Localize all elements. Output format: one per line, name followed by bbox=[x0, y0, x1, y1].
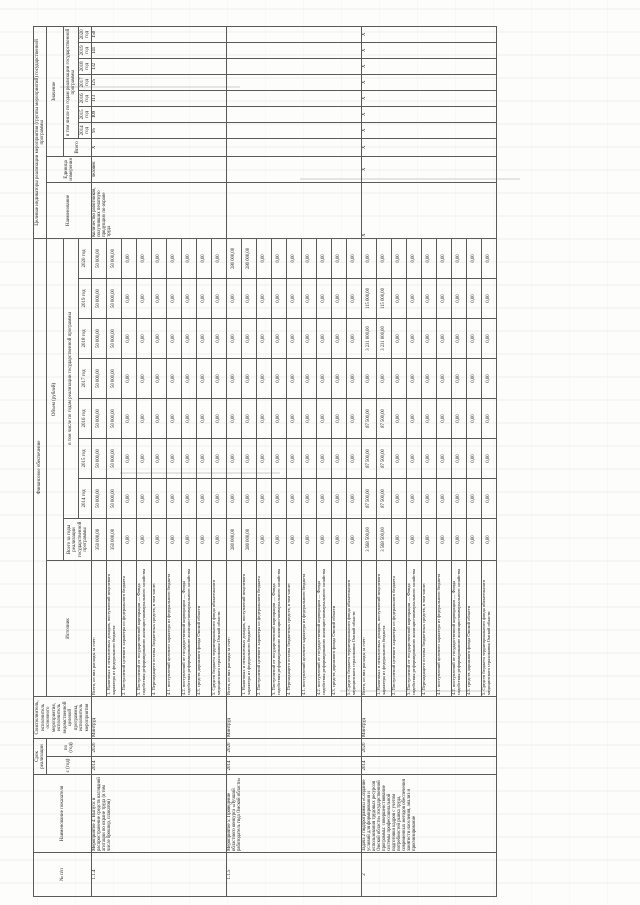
financing-year-value: 0,00 bbox=[137, 438, 152, 478]
financing-year-value: 0,00 bbox=[452, 238, 467, 278]
financing-total-value: 0,00 bbox=[272, 518, 287, 560]
financing-year-value: 0,00 bbox=[392, 318, 407, 358]
indicator-year-value: 150 bbox=[92, 26, 227, 42]
financing-year-value: 50 000,00 bbox=[107, 438, 122, 478]
financing-year-value: 0,00 bbox=[122, 398, 137, 438]
financing-year-value: 0,00 bbox=[467, 358, 482, 398]
col-header-indicator-name: Наименование bbox=[47, 182, 92, 238]
financing-year-value: 0,00 bbox=[227, 278, 242, 318]
financing-year-value: 0,00 bbox=[272, 278, 287, 318]
financing-year-value: 0,00 bbox=[332, 358, 347, 398]
financing-year-value: 0,00 bbox=[137, 278, 152, 318]
financing-year-value: 0,00 bbox=[242, 278, 257, 318]
indicator-year-value: 95 bbox=[92, 122, 227, 138]
financing-year-value: 0,00 bbox=[272, 238, 287, 278]
financing-year-value: 0,00 bbox=[407, 278, 422, 318]
financing-year-value: 0,00 bbox=[257, 438, 272, 478]
financing-total-value: 350 000,00 bbox=[107, 518, 122, 560]
financing-total-value: 0,00 bbox=[152, 518, 167, 560]
financing-year-value: 0,00 bbox=[167, 318, 182, 358]
financing-year-value: 0,00 bbox=[242, 398, 257, 438]
financing-year-value: 50 000,00 bbox=[92, 358, 107, 398]
financing-year-value: 0,00 bbox=[407, 398, 422, 438]
row-name: Мероприятие 5: Проведение областного кон… bbox=[227, 775, 362, 853]
financing-source-label: 2. Поступлений целевого характера из фед… bbox=[392, 560, 407, 696]
financing-year-value: 0,00 bbox=[242, 358, 257, 398]
financing-year-value: 0,00 bbox=[152, 398, 167, 438]
financing-year-value: 0,00 bbox=[467, 398, 482, 438]
financing-total-value: 0,00 bbox=[392, 518, 407, 560]
financing-total-value: 280 000,00 bbox=[227, 518, 242, 560]
indicator-year-value: Х bbox=[362, 90, 497, 106]
financing-year-value: 0,00 bbox=[182, 478, 197, 518]
financing-year-value: 0,00 bbox=[302, 358, 317, 398]
financing-year-value: 0,00 bbox=[182, 438, 197, 478]
financing-total-value: 0,00 bbox=[452, 518, 467, 560]
financing-year-value: 87 500,00 bbox=[377, 478, 392, 518]
financing-year-value: 50 000,00 bbox=[107, 398, 122, 438]
financing-year-value: 0,00 bbox=[212, 398, 227, 438]
financing-total-value: 0,00 bbox=[347, 518, 362, 560]
financing-year-value: 115 000,00 bbox=[377, 278, 392, 318]
indicator-year-value bbox=[227, 122, 362, 138]
col-header-year-financing: 2015 год bbox=[79, 438, 92, 478]
financing-total-value: 0,00 bbox=[182, 518, 197, 560]
financing-year-value: 0,00 bbox=[197, 358, 212, 398]
indicator-year-value bbox=[227, 58, 362, 74]
financing-year-value: 0,00 bbox=[452, 398, 467, 438]
col-header-executor: Соисполнитель, исполнитель основного мер… bbox=[34, 696, 92, 738]
financing-year-value: 0,00 bbox=[437, 478, 452, 518]
financing-source-label: Всего, из них расходы за счет: bbox=[227, 560, 242, 696]
indicator-year-value: 125 bbox=[92, 74, 227, 90]
financing-year-value: 0,00 bbox=[452, 278, 467, 318]
row-number: 1.1.4 bbox=[92, 853, 227, 897]
financing-year-value: 0,00 bbox=[482, 278, 497, 318]
financing-year-value: 0,00 bbox=[167, 358, 182, 398]
financing-total-value: 0,00 bbox=[332, 518, 347, 560]
indicator-year-value: 113 bbox=[92, 90, 227, 106]
financing-year-value: 0,00 bbox=[272, 478, 287, 518]
table-row: 1.1.5Мероприятие 5: Проведение областног… bbox=[227, 26, 242, 896]
financing-year-value: 0,00 bbox=[482, 438, 497, 478]
financing-total-value: 0,00 bbox=[422, 518, 437, 560]
col-header-term-from: с (год) bbox=[47, 757, 92, 775]
indicator-year-value: Х bbox=[362, 26, 497, 42]
col-header-year-indicator: 2015 год bbox=[79, 106, 92, 122]
financing-year-value: 0,00 bbox=[242, 318, 257, 358]
financing-year-value: 0,00 bbox=[482, 398, 497, 438]
table-header: № п/п Наименование показателя Срок реали… bbox=[34, 26, 92, 896]
financing-source-label: 3. Поступлений от государственной корпор… bbox=[137, 560, 152, 696]
financing-year-value: 0,00 bbox=[302, 238, 317, 278]
financing-source-label: 1. Налоговых и неналоговых доходов, пост… bbox=[242, 560, 257, 696]
financing-source-label: 3. Поступлений от государственной корпор… bbox=[272, 560, 287, 696]
financing-year-value: 0,00 bbox=[287, 278, 302, 318]
financing-year-value: 0,00 bbox=[317, 278, 332, 318]
financing-source-label: 5. Средств бюджета территориального фонд… bbox=[212, 560, 227, 696]
financing-year-value: 0,00 bbox=[332, 278, 347, 318]
financing-year-value: 50 000,00 bbox=[92, 278, 107, 318]
financing-year-value: 0,00 bbox=[467, 438, 482, 478]
col-header-year-financing: 2020 год bbox=[79, 238, 92, 278]
financing-year-value: 87 500,00 bbox=[362, 438, 377, 478]
row-number: 1.1.5 bbox=[227, 853, 362, 897]
financing-source-label: 2. Поступлений целевого характера из фед… bbox=[122, 560, 137, 696]
financing-year-value: 0,00 bbox=[317, 478, 332, 518]
financing-year-value: 0,00 bbox=[137, 318, 152, 358]
financing-source-label: 4.3. средств дорожного фонда Омской обла… bbox=[197, 560, 212, 696]
indicator-year-value: Х bbox=[362, 122, 497, 138]
financing-year-value: 0,00 bbox=[467, 238, 482, 278]
financing-total-value: 0,00 bbox=[122, 518, 137, 560]
financing-year-value: 0,00 bbox=[287, 238, 302, 278]
indicator-year-value bbox=[227, 42, 362, 58]
row-executor: Минтруд bbox=[227, 696, 362, 738]
col-header-year-financing: 2019 год bbox=[79, 278, 92, 318]
financing-year-value: 0,00 bbox=[422, 278, 437, 318]
financing-year-value: 0,00 bbox=[197, 438, 212, 478]
financing-source-label: 1. Налоговых и неналоговых доходов, пост… bbox=[377, 560, 392, 696]
financing-year-value: 0,00 bbox=[242, 438, 257, 478]
financing-year-value: 0,00 bbox=[272, 398, 287, 438]
financing-total-value: 0,00 bbox=[467, 518, 482, 560]
financing-year-value: 87 500,00 bbox=[362, 398, 377, 438]
financing-total-value: 0,00 bbox=[287, 518, 302, 560]
col-header-number: № п/п bbox=[34, 853, 92, 897]
financing-total-value: 280 000,00 bbox=[242, 518, 257, 560]
financing-source-label: Всего, из них расходы за счет: bbox=[362, 560, 377, 696]
financing-source-label: 4.3. средств дорожного фонда Омской обла… bbox=[467, 560, 482, 696]
financing-year-value: 0,00 bbox=[377, 358, 392, 398]
indicator-year-value: 109 bbox=[92, 106, 227, 122]
financing-source-label: 4.2. поступлений от государственной корп… bbox=[182, 560, 197, 696]
row-executor: Минтруд bbox=[362, 696, 497, 738]
financing-year-value: 50 000,00 bbox=[92, 238, 107, 278]
financing-year-value: 0,00 bbox=[212, 318, 227, 358]
financing-year-value: 0,00 bbox=[422, 358, 437, 398]
financing-year-value: 0,00 bbox=[212, 278, 227, 318]
financing-year-value: 0,00 bbox=[317, 438, 332, 478]
row-name: Задача 2 подпрограммы «Создание условий … bbox=[362, 775, 497, 853]
col-header-term-to: по (год) bbox=[47, 738, 92, 756]
row-term-from: 2014 bbox=[227, 757, 362, 775]
financing-year-value: 50 000,00 bbox=[92, 438, 107, 478]
col-header-source: Источник bbox=[47, 560, 92, 696]
financing-year-value: 0,00 bbox=[392, 398, 407, 438]
financing-total-value: 3 568 500,00 bbox=[377, 518, 392, 560]
financing-year-value: 0,00 bbox=[122, 358, 137, 398]
financing-year-value: 0,00 bbox=[302, 478, 317, 518]
financing-year-value: 50 000,00 bbox=[107, 478, 122, 518]
financing-year-value: 0,00 bbox=[362, 358, 377, 398]
financing-total-value: 0,00 bbox=[407, 518, 422, 560]
financing-year-value: 0,00 bbox=[257, 358, 272, 398]
financing-source-label: 4. Переходящего остатка бюджетных средст… bbox=[287, 560, 302, 696]
financing-year-value: 0,00 bbox=[437, 438, 452, 478]
indicator-unit: Х bbox=[362, 156, 497, 182]
financing-year-value: 0,00 bbox=[407, 318, 422, 358]
financing-year-value: 0,00 bbox=[242, 478, 257, 518]
landscape-sheet: № п/п Наименование показателя Срок реали… bbox=[0, 0, 640, 905]
col-header-year-indicator: 2019 год bbox=[79, 42, 92, 58]
financing-year-value: 0,00 bbox=[152, 358, 167, 398]
financing-year-value: 0,00 bbox=[182, 238, 197, 278]
group-header-value-by-years: в том числе по годам реализации государс… bbox=[64, 26, 79, 138]
financing-year-value: 0,00 bbox=[437, 398, 452, 438]
indicator-name bbox=[227, 182, 362, 238]
financing-year-value: 0,00 bbox=[167, 438, 182, 478]
financing-source-label: 5. Средств бюджета территориального фонд… bbox=[347, 560, 362, 696]
financing-year-value: 0,00 bbox=[197, 318, 212, 358]
financing-year-value: 0,00 bbox=[137, 238, 152, 278]
financing-year-value: 0,00 bbox=[302, 318, 317, 358]
financing-year-value: 50 000,00 bbox=[107, 358, 122, 398]
financing-source-label: 4. Переходящего остатка бюджетных средст… bbox=[422, 560, 437, 696]
indicator-unit bbox=[227, 156, 362, 182]
financing-total-value: 350 000,00 bbox=[92, 518, 107, 560]
financing-year-value: 50 000,00 bbox=[107, 238, 122, 278]
row-term-from: 2014 bbox=[92, 757, 227, 775]
col-header-year-indicator: 2014 год bbox=[79, 122, 92, 138]
financing-year-value: 0,00 bbox=[452, 438, 467, 478]
financing-year-value: 0,00 bbox=[437, 278, 452, 318]
row-term-to: 2020 bbox=[227, 738, 362, 756]
row-term-from: 2014 bbox=[362, 757, 497, 775]
table-row: 2Задача 2 подпрограммы «Создание условий… bbox=[362, 26, 377, 896]
financing-total-value: 0,00 bbox=[257, 518, 272, 560]
financing-year-value: 0,00 bbox=[437, 238, 452, 278]
financing-year-value: 0,00 bbox=[257, 478, 272, 518]
financing-year-value: 0,00 bbox=[482, 358, 497, 398]
financing-year-value: 50 000,00 bbox=[92, 318, 107, 358]
financing-year-value: 0,00 bbox=[332, 478, 347, 518]
financing-year-value: 0,00 bbox=[422, 238, 437, 278]
col-header-year-financing: 2018 год bbox=[79, 318, 92, 358]
financing-year-value: 0,00 bbox=[467, 318, 482, 358]
indicator-name: Количество работников, получивших печатн… bbox=[92, 182, 227, 238]
financing-year-value: 0,00 bbox=[437, 318, 452, 358]
financing-year-value: 0,00 bbox=[212, 478, 227, 518]
financing-year-value: 0,00 bbox=[152, 438, 167, 478]
financing-year-value: 0,00 bbox=[287, 438, 302, 478]
indicator-year-value bbox=[227, 90, 362, 106]
financing-year-value: 0,00 bbox=[347, 478, 362, 518]
col-header-year-indicator: 2017 год bbox=[79, 74, 92, 90]
table-row: 1.1.4Мероприятие 4: Выпуск и распростран… bbox=[92, 26, 107, 896]
col-header-name: Наименование показателя bbox=[34, 775, 92, 853]
financing-year-value: 0,00 bbox=[167, 478, 182, 518]
financing-year-value: 50 000,00 bbox=[92, 478, 107, 518]
row-executor: Минтруд bbox=[92, 696, 227, 738]
financing-year-value: 0,00 bbox=[212, 238, 227, 278]
financing-source-label: 3. Поступлений от государственной корпор… bbox=[407, 560, 422, 696]
financing-year-value: 0,00 bbox=[452, 478, 467, 518]
financing-year-value: 0,00 bbox=[332, 238, 347, 278]
financing-year-value: 0,00 bbox=[407, 238, 422, 278]
indicator-total-value: Х bbox=[362, 138, 497, 156]
financing-year-value: 0,00 bbox=[287, 478, 302, 518]
financing-year-value: 0,00 bbox=[317, 238, 332, 278]
program-structure-table: № п/п Наименование показателя Срок реали… bbox=[33, 26, 497, 897]
financing-year-value: 0,00 bbox=[362, 238, 377, 278]
financing-year-value: 0,00 bbox=[452, 318, 467, 358]
financing-total-value: 0,00 bbox=[317, 518, 332, 560]
col-header-year-indicator: 2020 год bbox=[79, 26, 92, 42]
financing-year-value: 0,00 bbox=[122, 318, 137, 358]
financing-year-value: 0,00 bbox=[257, 238, 272, 278]
financing-year-value: 0,00 bbox=[482, 318, 497, 358]
financing-year-value: 0,00 bbox=[482, 478, 497, 518]
financing-year-value: 0,00 bbox=[212, 438, 227, 478]
indicator-year-value bbox=[227, 74, 362, 90]
indicator-total-value bbox=[227, 138, 362, 156]
financing-year-value: 0,00 bbox=[227, 398, 242, 438]
indicator-year-value bbox=[227, 106, 362, 122]
financing-year-value: 0,00 bbox=[452, 358, 467, 398]
financing-source-label: Всего, из них расходы за счет: bbox=[92, 560, 107, 696]
financing-year-value: 0,00 bbox=[422, 478, 437, 518]
indicator-year-value: Х bbox=[362, 74, 497, 90]
financing-year-value: 0,00 bbox=[152, 318, 167, 358]
indicator-unit: человек bbox=[92, 156, 227, 182]
financing-year-value: 0,00 bbox=[227, 478, 242, 518]
financing-total-value: 0,00 bbox=[212, 518, 227, 560]
financing-year-value: 0,00 bbox=[227, 358, 242, 398]
financing-year-value: 0,00 bbox=[467, 478, 482, 518]
financing-year-value: 0,00 bbox=[392, 238, 407, 278]
group-header-volume-by-years: в том числе по годам реализации государс… bbox=[64, 238, 79, 518]
financing-source-label: 1. Налоговых и неналоговых доходов, пост… bbox=[107, 560, 122, 696]
financing-total-value: 0,00 bbox=[137, 518, 152, 560]
financing-year-value: 0,00 bbox=[347, 438, 362, 478]
financing-total-value: 0,00 bbox=[167, 518, 182, 560]
financing-year-value: 0,00 bbox=[347, 398, 362, 438]
financing-year-value: 0,00 bbox=[377, 238, 392, 278]
financing-year-value: 0,00 bbox=[347, 318, 362, 358]
financing-total-value: 3 568 500,00 bbox=[362, 518, 377, 560]
financing-year-value: 0,00 bbox=[122, 278, 137, 318]
financing-year-value: 0,00 bbox=[482, 238, 497, 278]
financing-year-value: 50 000,00 bbox=[92, 398, 107, 438]
financing-source-label: 5. Средств бюджета территориального фонд… bbox=[482, 560, 497, 696]
financing-year-value: 0,00 bbox=[287, 318, 302, 358]
financing-total-value: 0,00 bbox=[197, 518, 212, 560]
financing-year-value: 0,00 bbox=[122, 438, 137, 478]
financing-year-value: 0,00 bbox=[257, 318, 272, 358]
group-header-indicator-value: Значение bbox=[47, 26, 64, 156]
group-header-indicators: Целевые индикаторы реализации мероприяти… bbox=[34, 26, 47, 238]
financing-total-value: 0,00 bbox=[482, 518, 497, 560]
financing-year-value: 0,00 bbox=[257, 398, 272, 438]
financing-year-value: 0,00 bbox=[137, 358, 152, 398]
financing-year-value: 0,00 bbox=[152, 238, 167, 278]
col-header-term: Срок реализации bbox=[34, 738, 47, 774]
financing-year-value: 0,00 bbox=[392, 478, 407, 518]
financing-year-value: 0,00 bbox=[257, 278, 272, 318]
financing-year-value: 0,00 bbox=[227, 318, 242, 358]
financing-source-label: 4.3. средств дорожного фонда Омской обла… bbox=[332, 560, 347, 696]
row-term-to: 2020 bbox=[92, 738, 227, 756]
indicator-name: Х bbox=[362, 182, 497, 238]
indicator-year-value: Х bbox=[362, 106, 497, 122]
financing-year-value: 3 231 000,00 bbox=[362, 318, 377, 358]
financing-year-value: 0,00 bbox=[152, 478, 167, 518]
indicator-year-value bbox=[227, 26, 362, 42]
financing-year-value: 0,00 bbox=[287, 358, 302, 398]
financing-year-value: 87 500,00 bbox=[362, 478, 377, 518]
financing-year-value: 50 000,00 bbox=[107, 318, 122, 358]
financing-year-value: 0,00 bbox=[167, 238, 182, 278]
col-header-year-financing: 2017 год bbox=[79, 358, 92, 398]
financing-year-value: 0,00 bbox=[422, 398, 437, 438]
financing-year-value: 0,00 bbox=[317, 398, 332, 438]
financing-year-value: 280 000,00 bbox=[227, 238, 242, 278]
financing-year-value: 115 000,00 bbox=[362, 278, 377, 318]
col-header-year-financing: 2016 год bbox=[79, 398, 92, 438]
financing-year-value: 0,00 bbox=[167, 278, 182, 318]
financing-year-value: 0,00 bbox=[392, 438, 407, 478]
financing-year-value: 0,00 bbox=[227, 438, 242, 478]
row-term-to: 2020 bbox=[362, 738, 497, 756]
financing-source-label: 4.2. поступлений от государственной корп… bbox=[317, 560, 332, 696]
financing-year-value: 0,00 bbox=[317, 318, 332, 358]
financing-year-value: 0,00 bbox=[167, 398, 182, 438]
financing-year-value: 0,00 bbox=[332, 398, 347, 438]
financing-total-value: 0,00 bbox=[302, 518, 317, 560]
financing-year-value: 0,00 bbox=[302, 278, 317, 318]
col-header-value-total: Всего bbox=[64, 138, 92, 156]
financing-year-value: 0,00 bbox=[422, 318, 437, 358]
col-header-year-indicator: 2018 год bbox=[79, 58, 92, 74]
group-header-volume: Объем (рублей) bbox=[47, 238, 64, 560]
financing-year-value: 0,00 bbox=[197, 238, 212, 278]
row-number: 2 bbox=[362, 853, 497, 897]
financing-total-value: 0,00 bbox=[437, 518, 452, 560]
financing-year-value: 0,00 bbox=[212, 358, 227, 398]
financing-year-value: 87 500,00 bbox=[377, 398, 392, 438]
indicator-total-value: Х bbox=[92, 138, 227, 156]
table-body: 1.1.4Мероприятие 4: Выпуск и распростран… bbox=[92, 26, 497, 896]
financing-year-value: 0,00 bbox=[287, 398, 302, 438]
financing-year-value: 50 000,00 bbox=[107, 278, 122, 318]
scanned-page: № п/п Наименование показателя Срок реали… bbox=[0, 0, 640, 905]
financing-year-value: 0,00 bbox=[152, 278, 167, 318]
col-header-year-indicator: 2016 год bbox=[79, 90, 92, 106]
financing-year-value: 87 500,00 bbox=[377, 438, 392, 478]
financing-year-value: 3 231 000,00 bbox=[377, 318, 392, 358]
financing-source-label: 4.1. поступлений целевого характера из ф… bbox=[167, 560, 182, 696]
financing-year-value: 0,00 bbox=[347, 358, 362, 398]
indicator-year-value: Х bbox=[362, 58, 497, 74]
financing-year-value: 0,00 bbox=[272, 358, 287, 398]
financing-year-value: 0,00 bbox=[197, 278, 212, 318]
indicator-year-value: Х bbox=[362, 42, 497, 58]
financing-year-value: 0,00 bbox=[347, 238, 362, 278]
financing-year-value: 0,00 bbox=[182, 278, 197, 318]
financing-year-value: 0,00 bbox=[332, 318, 347, 358]
financing-source-label: 4.1. поступлений целевого характера из ф… bbox=[302, 560, 317, 696]
financing-year-value: 0,00 bbox=[122, 478, 137, 518]
col-header-indicator-unit: Единица измерения bbox=[47, 156, 92, 182]
financing-year-value: 0,00 bbox=[392, 358, 407, 398]
financing-year-value: 0,00 bbox=[347, 278, 362, 318]
financing-year-value: 0,00 bbox=[272, 438, 287, 478]
indicator-year-value: 132 bbox=[92, 58, 227, 74]
financing-year-value: 0,00 bbox=[182, 358, 197, 398]
financing-year-value: 0,00 bbox=[407, 358, 422, 398]
financing-year-value: 0,00 bbox=[437, 358, 452, 398]
